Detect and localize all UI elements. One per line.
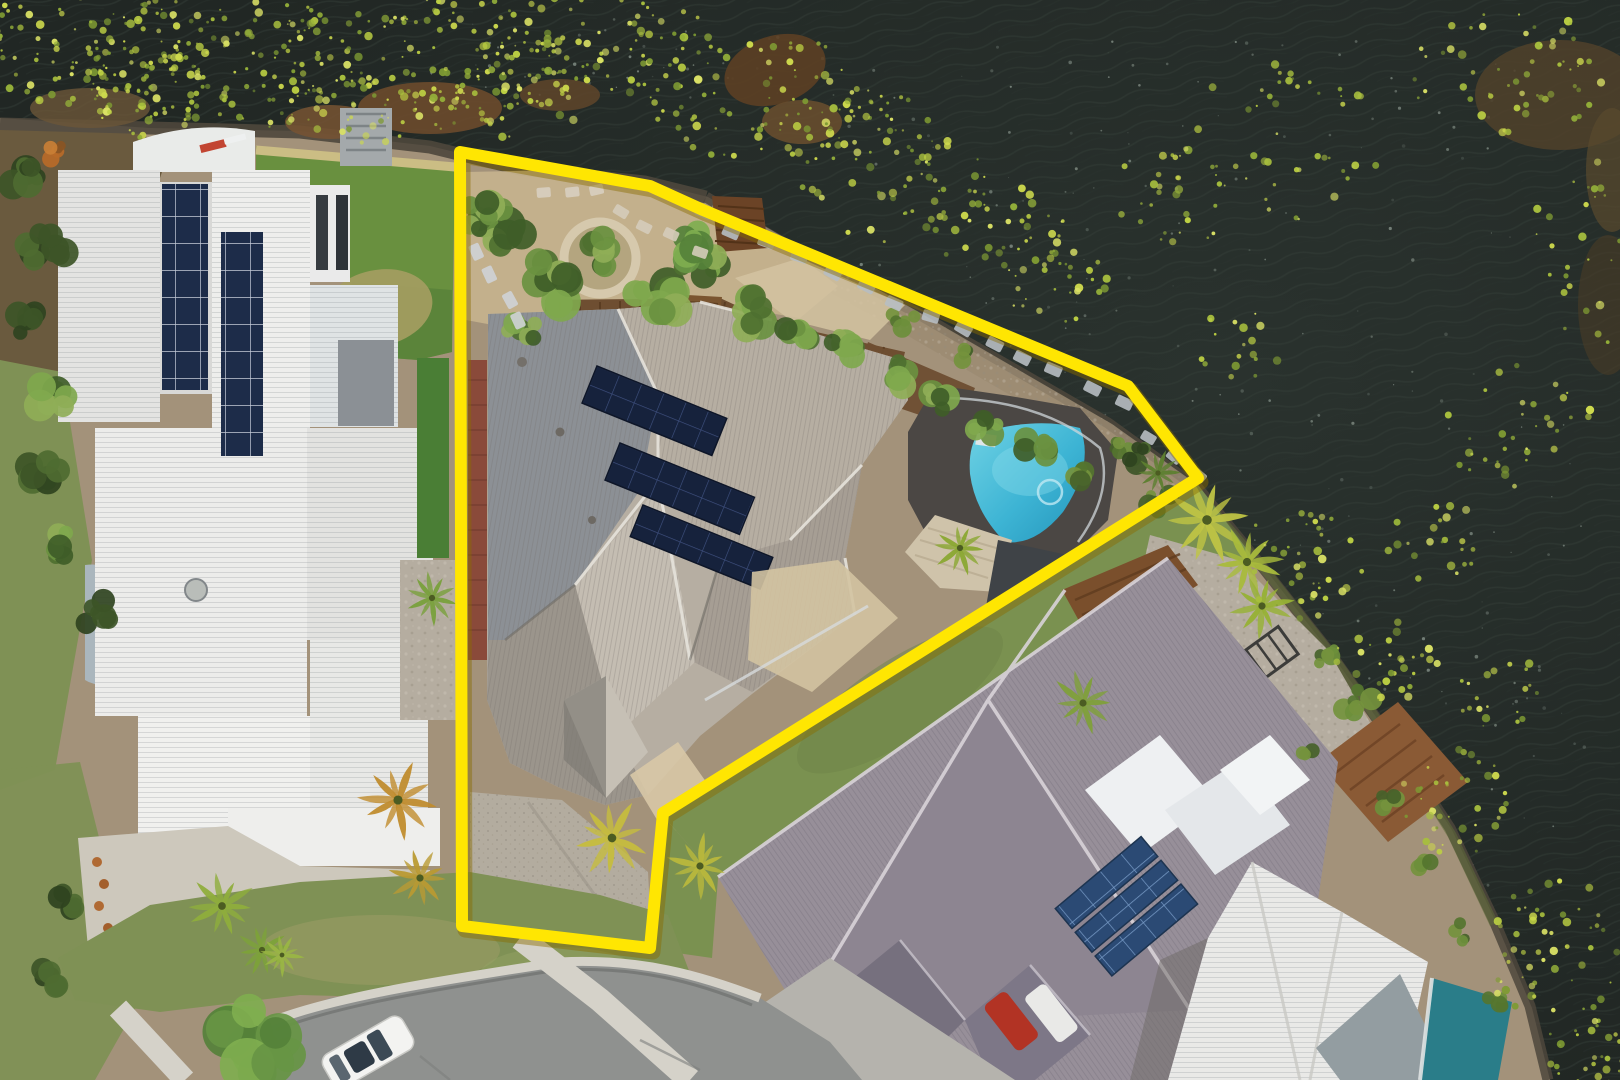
left-solar-array-2 [221,232,263,456]
roof-corrugation [95,428,307,716]
dark-roof-section [338,340,394,426]
roof-corrugation [58,170,160,422]
satellite-dish [185,579,207,601]
aerial-photo-canvas [0,0,1620,1080]
turf-strip [417,358,449,558]
left-solar-array-1 [162,184,208,390]
aerial-photo [0,0,1620,1080]
